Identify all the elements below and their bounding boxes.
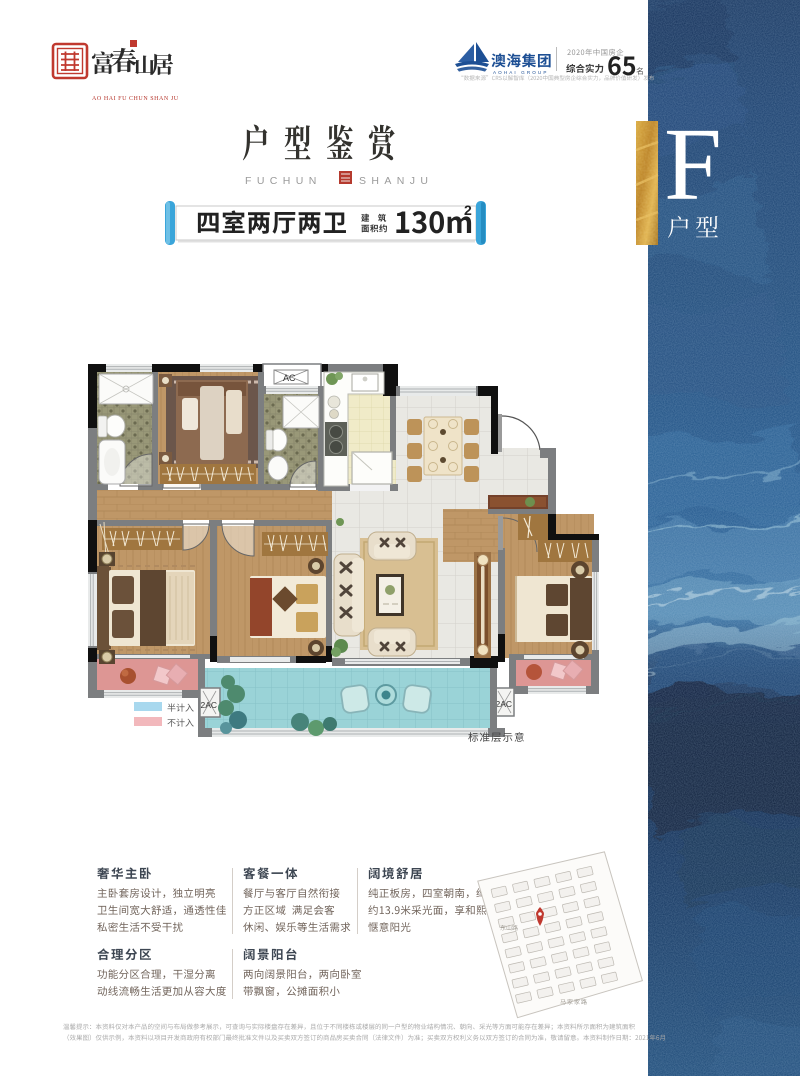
svg-text:F: F	[664, 107, 722, 222]
svg-text:2AC: 2AC	[201, 700, 218, 710]
svg-text:SHANJU: SHANJU	[359, 175, 433, 187]
svg-text:2: 2	[464, 202, 472, 218]
svg-text:AOHAI GROUP: AOHAI GROUP	[493, 70, 549, 75]
svg-text:AC: AC	[283, 373, 296, 383]
svg-text:FUCHUN: FUCHUN	[245, 175, 322, 187]
svg-text:AO HAI FU CHUN SHAN JU: AO HAI FU CHUN SHAN JU	[92, 96, 179, 102]
svg-text:2AC: 2AC	[496, 699, 513, 709]
